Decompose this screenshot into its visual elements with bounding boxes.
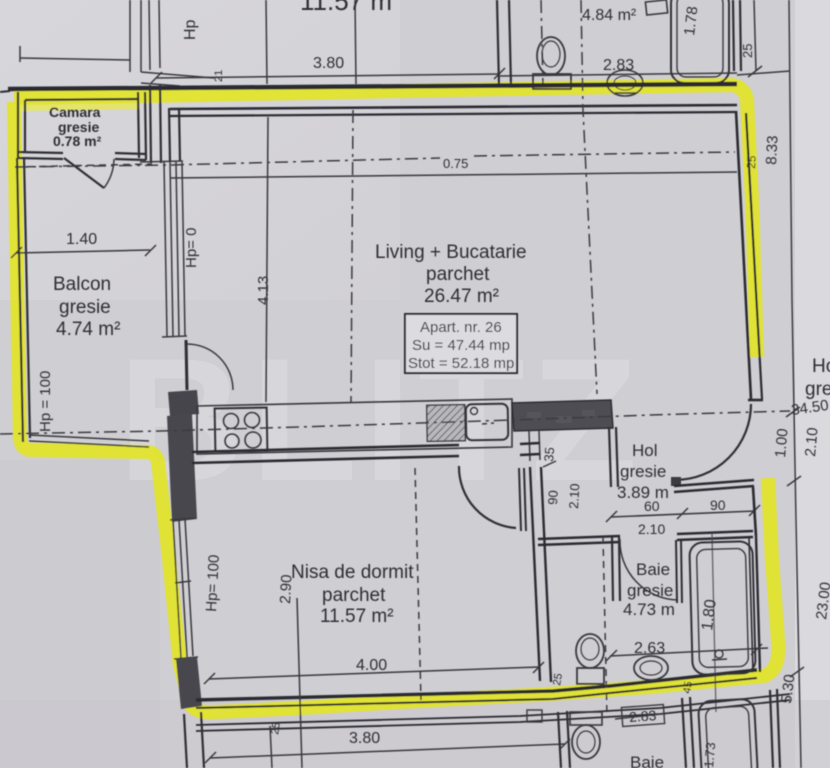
svg-text:11.57 m²: 11.57 m² — [320, 606, 394, 627]
svg-text:4.73 m: 4.73 m — [623, 600, 675, 619]
svg-text:3.89 m: 3.89 m — [617, 483, 669, 502]
svg-text:Camara: Camara — [49, 104, 101, 120]
svg-text:Su = 47.44 mp: Su = 47.44 mp — [412, 337, 510, 354]
svg-text:parchet: parchet — [322, 585, 386, 606]
svg-text:8.33: 8.33 — [763, 135, 782, 165]
svg-text:Hp= 100: Hp= 100 — [203, 554, 223, 612]
svg-text:Baie: Baie — [630, 753, 664, 768]
svg-text:3.80: 3.80 — [349, 730, 380, 747]
svg-text:Hp = 100: Hp = 100 — [37, 371, 54, 432]
svg-text:4.84 m²: 4.84 m² — [582, 7, 637, 24]
svg-text:1.40: 1.40 — [66, 231, 97, 248]
svg-text:25: 25 — [744, 155, 759, 169]
svg-text:25: 25 — [269, 721, 283, 735]
svg-text:gresie: gresie — [620, 462, 666, 481]
svg-text:21: 21 — [213, 70, 225, 82]
svg-text:4.74 m²: 4.74 m² — [56, 319, 120, 340]
svg-text:parchet: parchet — [426, 264, 490, 285]
svg-text:1.73: 1.73 — [701, 742, 718, 768]
svg-text:25: 25 — [740, 44, 755, 58]
svg-text:1.00: 1.00 — [772, 428, 791, 459]
svg-text:0.78 m²: 0.78 m² — [53, 133, 102, 149]
svg-text:Ho: Ho — [812, 356, 830, 377]
svg-text:26.47 m²: 26.47 m² — [424, 286, 499, 307]
svg-text:3.80: 3.80 — [313, 55, 344, 72]
svg-text:45: 45 — [681, 680, 695, 694]
svg-text:Balcon: Balcon — [53, 274, 111, 295]
svg-text:gre: gre — [805, 379, 830, 400]
svg-text:2.90: 2.90 — [277, 574, 296, 604]
svg-text:35: 35 — [541, 447, 557, 463]
svg-text:Hp= 0: Hp= 0 — [183, 228, 200, 268]
svg-text:1.78: 1.78 — [681, 5, 701, 36]
svg-text:60: 60 — [644, 498, 660, 514]
svg-text:90: 90 — [710, 497, 726, 513]
svg-text:Living + Bucatarie: Living + Bucatarie — [375, 242, 527, 263]
svg-text:0.75: 0.75 — [443, 156, 468, 171]
svg-text:90: 90 — [545, 490, 561, 505]
svg-text:2.10: 2.10 — [802, 427, 821, 458]
svg-text:Hp: Hp — [182, 19, 199, 40]
svg-text:2.10: 2.10 — [638, 521, 665, 537]
svg-text:gresie: gresie — [59, 297, 111, 318]
svg-text:11.57 m: 11.57 m — [300, 0, 392, 16]
svg-text:2.10: 2.10 — [566, 483, 582, 509]
svg-text:4.00: 4.00 — [356, 657, 387, 674]
svg-text:Apart. nr. 26: Apart. nr. 26 — [420, 319, 502, 336]
svg-text:4.13: 4.13 — [255, 276, 272, 305]
svg-text:Baie: Baie — [636, 560, 670, 579]
svg-text:Stot = 52.18 mp: Stot = 52.18 mp — [408, 355, 514, 372]
svg-text:gresie: gresie — [627, 581, 673, 600]
svg-text:Nisa de dormit: Nisa de dormit — [291, 562, 414, 583]
svg-text:Hol: Hol — [632, 441, 658, 460]
svg-text:25: 25 — [551, 672, 565, 686]
